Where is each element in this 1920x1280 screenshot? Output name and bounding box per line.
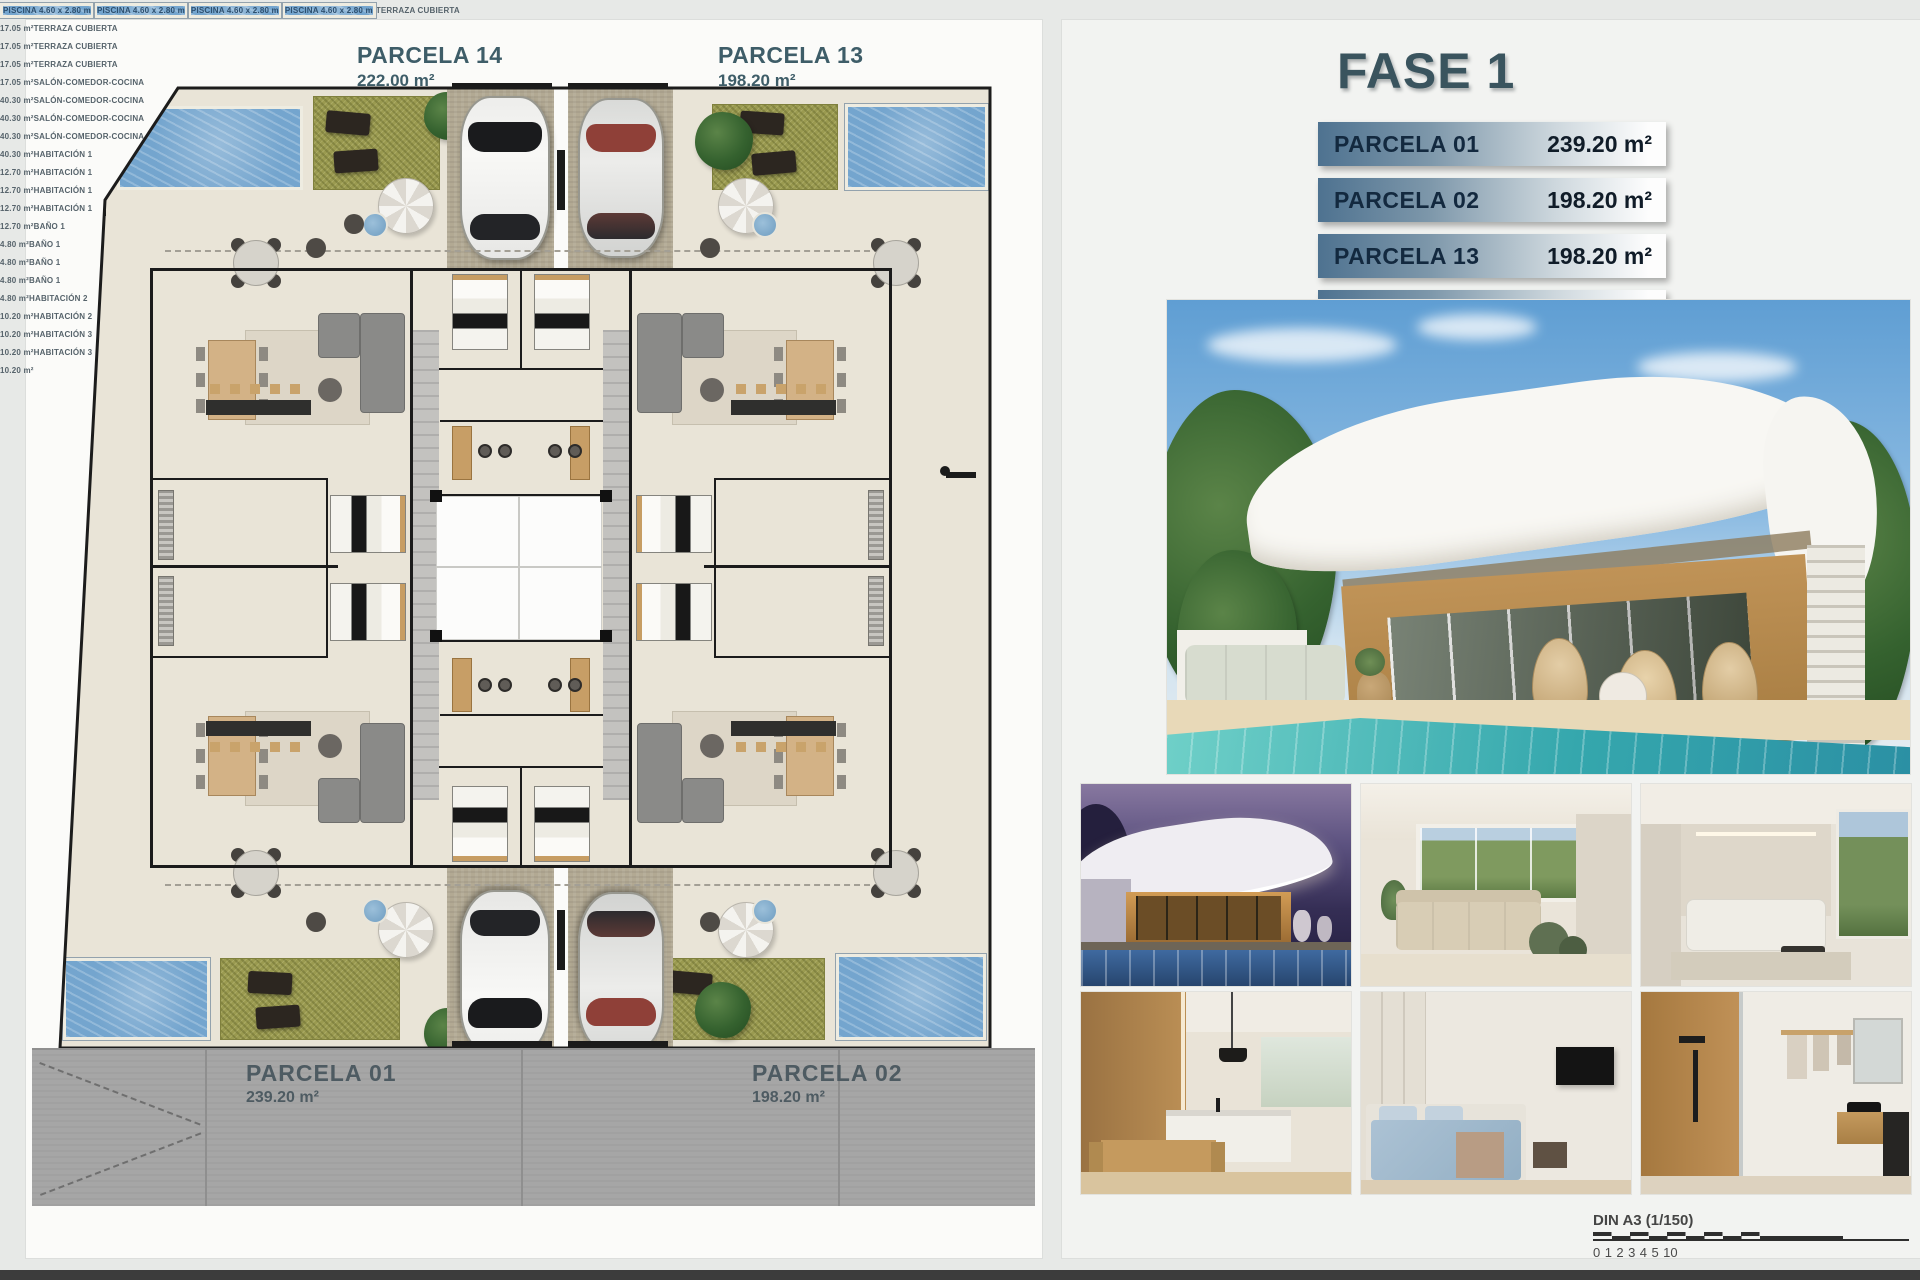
- dining-chair: [1089, 1142, 1103, 1176]
- parcel-area: 239.20 m²: [246, 1089, 476, 1107]
- sofa: [1686, 899, 1826, 951]
- table-row-value: 198.20 m²: [1547, 243, 1652, 270]
- page-title: FASE 1: [1337, 42, 1637, 102]
- window-trees: [1836, 809, 1911, 939]
- table-row: PARCELA 02 198.20 m²: [1318, 178, 1666, 222]
- road-chevron: [39, 1062, 200, 1126]
- shower-head: [1679, 1036, 1705, 1043]
- road-divider: [205, 1050, 207, 1206]
- towel: [1837, 1035, 1851, 1065]
- road-chevron: [40, 1132, 201, 1196]
- pool-night: [1081, 950, 1351, 986]
- thumbnail-bathroom: [1641, 992, 1911, 1194]
- scale-tick: 5: [1651, 1245, 1658, 1260]
- outdoor-sofa: [1185, 645, 1345, 705]
- pendant-cord: [1231, 992, 1233, 1050]
- scale-tick: 3: [1628, 1245, 1635, 1260]
- floor: [1641, 1176, 1911, 1194]
- page: PARCELA 14 222.00 m² PARCELA 13 198.20 m…: [0, 0, 1920, 1280]
- road: PARCELA 01 239.20 m² PARCELA 02 198.20 m…: [32, 1048, 1035, 1206]
- vase: [1317, 916, 1332, 942]
- scale-bar-graphic: [1593, 1232, 1909, 1242]
- floor: [1361, 1180, 1631, 1194]
- table-row-value: 239.20 m²: [1547, 131, 1652, 158]
- parcel-name: PARCELA 01: [246, 1060, 476, 1087]
- bottom-bar: [0, 1270, 1920, 1280]
- floor: [1361, 954, 1631, 986]
- thumbnail-lounge: [1641, 784, 1911, 986]
- parcel-label-road-left: PARCELA 01 239.20 m²: [246, 1060, 476, 1120]
- back-window: [1261, 1037, 1351, 1107]
- scale-tick: 0: [1593, 1245, 1600, 1260]
- scale-tick: 2: [1616, 1245, 1623, 1260]
- pendant-shade: [1219, 1048, 1247, 1062]
- towel: [1787, 1035, 1807, 1079]
- thumbnail-bedroom: [1361, 992, 1631, 1194]
- table-row-label: PARCELA 01: [1334, 131, 1480, 158]
- storage-tower: [1883, 1112, 1909, 1184]
- dining-chair: [1211, 1142, 1225, 1176]
- parcel-label-road-right: PARCELA 02 198.20 m²: [752, 1060, 982, 1120]
- scale-ticks: 0 1 2 3 4 5 10: [1593, 1244, 1920, 1260]
- road-divider: [521, 1050, 523, 1206]
- cloud: [1207, 328, 1397, 362]
- faucet: [1216, 1098, 1220, 1112]
- thumbnail-villa-exterior-night: [1081, 784, 1351, 986]
- cloud: [1417, 314, 1537, 340]
- cove-light: [1696, 832, 1816, 836]
- ceiling: [1186, 992, 1351, 1032]
- table-row-label: PARCELA 13: [1334, 243, 1480, 270]
- parcel-name: PARCELA 02: [752, 1060, 982, 1087]
- nightstand: [1533, 1142, 1567, 1168]
- mirror: [1853, 1018, 1903, 1084]
- floor: [1081, 1172, 1351, 1194]
- shower-bar: [1693, 1050, 1698, 1122]
- scale-tick: 10: [1663, 1245, 1677, 1260]
- thumbnail-kitchen-dining: [1081, 992, 1351, 1194]
- throw-blanket: [1456, 1132, 1504, 1178]
- towel: [1813, 1035, 1829, 1071]
- scale-bar: DIN A3 (1/150) 0 1 2 3 4 5 10: [1593, 1212, 1920, 1262]
- tv: [1556, 1047, 1614, 1085]
- scale-tick: 1: [1605, 1245, 1612, 1260]
- sofa: [1396, 902, 1541, 950]
- thumbnail-living-room: [1361, 784, 1631, 986]
- scale-line: [1593, 1239, 1909, 1241]
- rug: [1671, 952, 1851, 980]
- table-row: PARCELA 01 239.20 m²: [1318, 122, 1666, 166]
- side-wall: [1576, 814, 1631, 954]
- glass-partition: [1739, 992, 1743, 1194]
- glass-doors: [1136, 896, 1281, 940]
- wood-shower-wall: [1641, 992, 1739, 1194]
- table-row: PARCELA 13 198.20 m²: [1318, 234, 1666, 278]
- parcel-area: 198.20 m²: [752, 1089, 982, 1107]
- villa-wall: [1081, 879, 1131, 949]
- vase: [1293, 910, 1311, 942]
- hero-render-villa-exterior: [1167, 300, 1910, 774]
- scale-bar-label: DIN A3 (1/150): [1593, 1212, 1813, 1230]
- table-row-label: PARCELA 02: [1334, 187, 1480, 214]
- plant: [1355, 648, 1385, 676]
- table-row-value: 198.20 m²: [1547, 187, 1652, 214]
- scale-tick: 4: [1640, 1245, 1647, 1260]
